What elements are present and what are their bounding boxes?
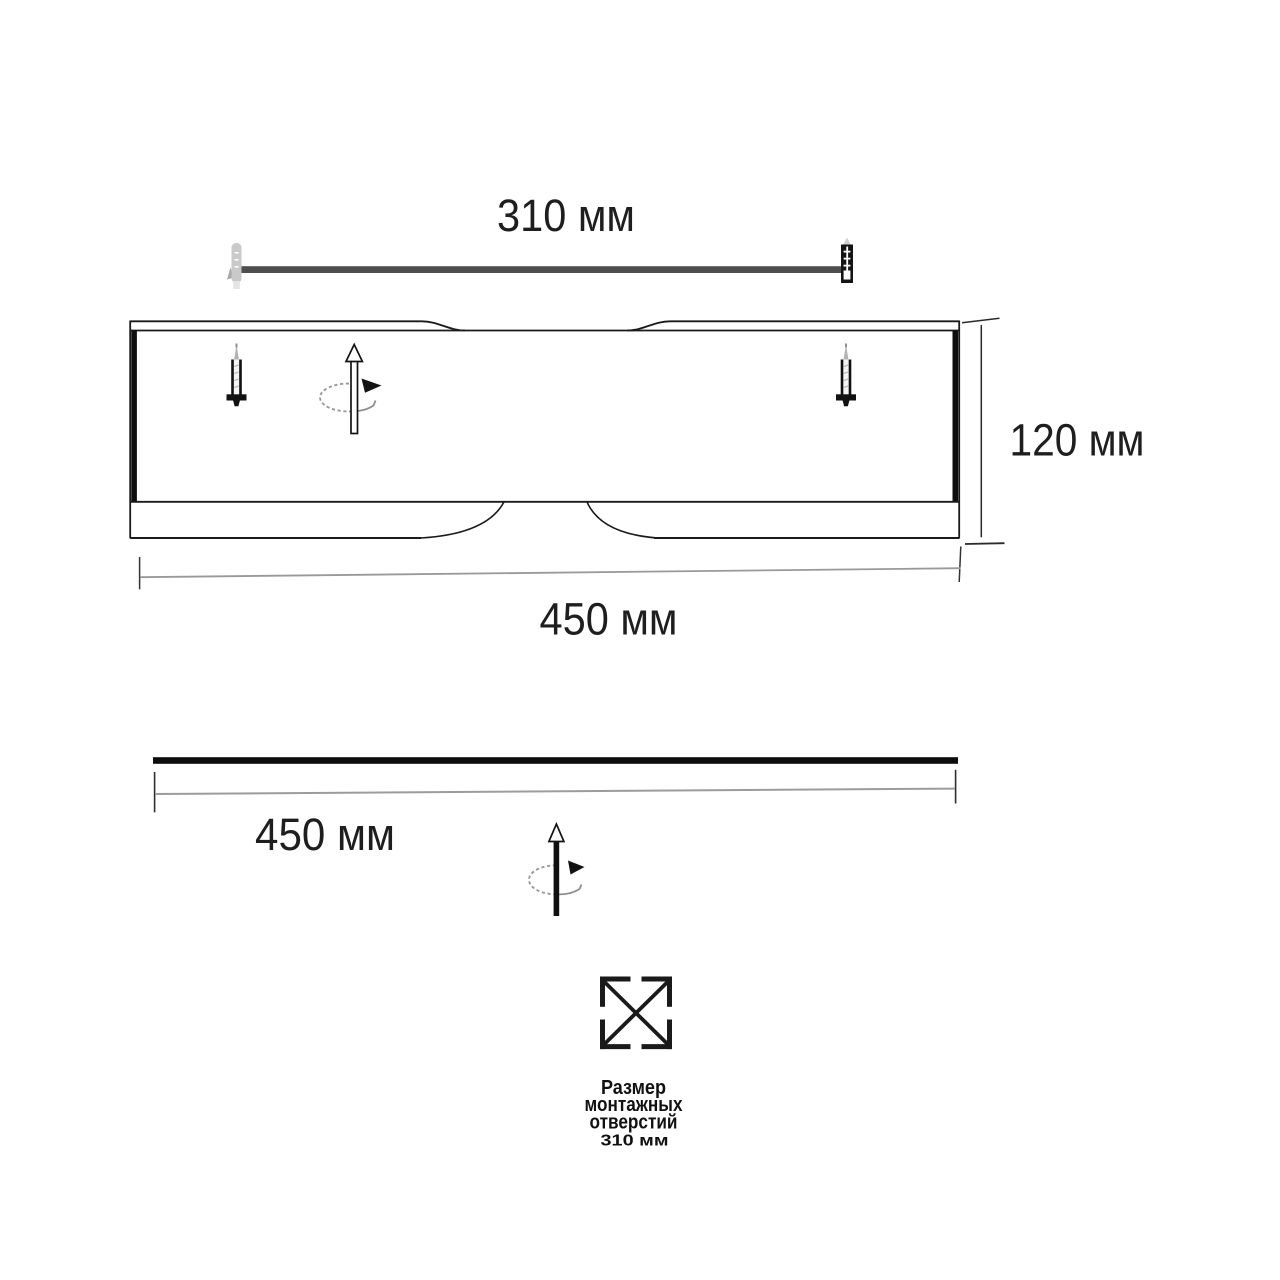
svg-text:310 мм: 310 мм	[601, 1132, 669, 1149]
svg-text:450 мм: 450 мм	[255, 809, 395, 860]
svg-text:отверстий: отверстий	[590, 1112, 678, 1134]
svg-text:120 мм: 120 мм	[1010, 415, 1145, 466]
svg-text:310 мм: 310 мм	[497, 190, 635, 241]
svg-text:450 мм: 450 мм	[540, 594, 678, 645]
